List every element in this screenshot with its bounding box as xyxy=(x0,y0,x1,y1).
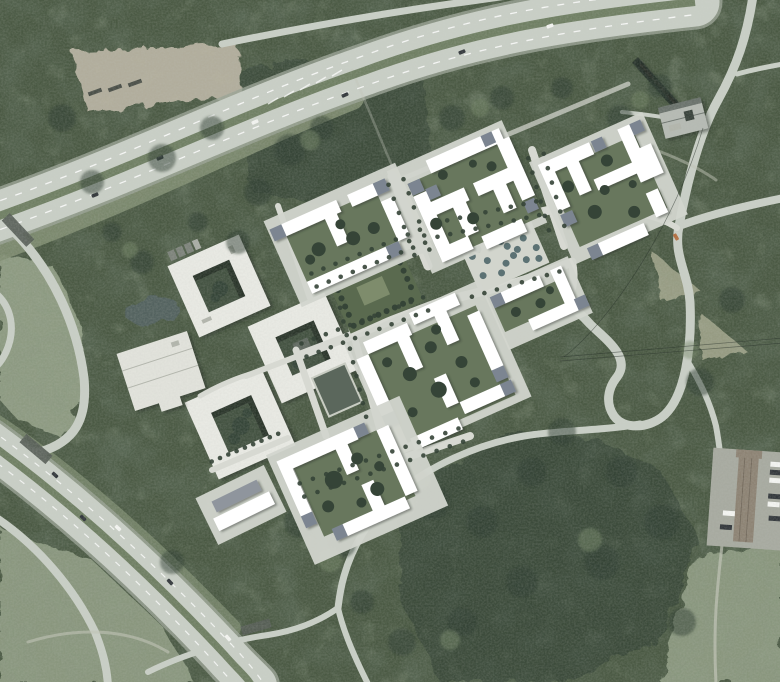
street-tree xyxy=(445,218,450,223)
street-tree xyxy=(482,291,487,296)
street-tree xyxy=(357,387,362,392)
street-tree xyxy=(363,265,368,270)
street-tree xyxy=(391,197,396,202)
street-tree xyxy=(381,242,386,247)
street-tree xyxy=(473,226,478,231)
street-tree xyxy=(243,445,248,450)
street-tree xyxy=(483,210,488,215)
street-tree xyxy=(386,183,391,188)
street-tree xyxy=(530,170,535,175)
street-tree xyxy=(321,266,326,271)
street-tree xyxy=(368,471,373,476)
street-tree xyxy=(311,337,316,342)
street-tree xyxy=(377,327,382,332)
street-tree xyxy=(309,271,314,276)
street-tree xyxy=(403,445,408,450)
street-tree xyxy=(315,490,320,495)
street-tree xyxy=(251,442,256,447)
street-tree xyxy=(562,224,567,229)
street-tree xyxy=(507,284,512,289)
street-tree xyxy=(426,308,431,313)
street-tree xyxy=(361,401,366,406)
street-tree xyxy=(434,449,439,454)
street-tree xyxy=(550,180,555,185)
street-tree xyxy=(355,476,360,481)
street-tree xyxy=(364,415,369,420)
street-tree xyxy=(351,360,356,365)
street-tree xyxy=(543,214,548,219)
aerial-map: Aerial photograph site plan — masterplan… xyxy=(0,0,780,682)
street-tree xyxy=(418,227,423,232)
street-tree xyxy=(421,295,426,300)
street-tree xyxy=(414,313,419,318)
street-tree xyxy=(329,485,334,490)
street-tree xyxy=(461,439,466,444)
street-tree xyxy=(324,472,329,477)
street-tree xyxy=(384,309,389,314)
street-tree xyxy=(338,306,343,311)
street-tree xyxy=(341,340,346,345)
street-tree xyxy=(209,459,214,464)
street-tree xyxy=(302,494,307,499)
street-tree xyxy=(377,454,382,459)
street-tree xyxy=(534,199,539,204)
street-tree xyxy=(486,224,491,229)
street-tree xyxy=(458,215,463,220)
street-tree xyxy=(537,213,542,218)
street-tree xyxy=(430,435,435,440)
street-tree xyxy=(336,327,341,332)
street-tree xyxy=(417,440,422,445)
street-tree xyxy=(456,426,461,431)
street-tree xyxy=(401,177,406,182)
street-tree xyxy=(524,216,529,221)
street-tree xyxy=(364,458,369,463)
street-tree xyxy=(422,233,427,238)
street-tree xyxy=(496,207,501,212)
street-tree xyxy=(316,350,321,355)
street-tree xyxy=(421,453,426,458)
street-tree xyxy=(218,456,223,461)
street-tree xyxy=(423,240,428,245)
street-tree xyxy=(337,467,342,472)
street-tree xyxy=(546,166,551,171)
street-tree xyxy=(226,452,231,457)
street-tree xyxy=(554,195,559,200)
street-tree xyxy=(532,276,537,281)
street-tree xyxy=(557,269,562,274)
street-tree xyxy=(259,438,264,443)
street-tree xyxy=(326,279,331,284)
street-tree xyxy=(417,219,422,224)
street-tree xyxy=(234,449,239,454)
street-tree xyxy=(547,228,552,233)
street-tree xyxy=(541,152,546,157)
street-tree xyxy=(390,449,395,454)
street-tree xyxy=(448,232,453,237)
street-tree xyxy=(360,318,365,323)
street-tree xyxy=(399,250,404,255)
street-tree xyxy=(427,247,432,252)
street-tree xyxy=(406,232,411,237)
street-tree xyxy=(558,209,563,214)
street-tree xyxy=(499,221,504,226)
street-tree xyxy=(401,317,406,322)
street-tree xyxy=(311,477,316,482)
street-tree xyxy=(511,218,516,223)
street-tree xyxy=(314,284,319,289)
street-tree xyxy=(520,280,525,285)
street-tree xyxy=(411,245,416,250)
street-tree xyxy=(268,435,273,440)
street-tree xyxy=(408,458,413,463)
street-tree xyxy=(354,374,359,379)
street-tree xyxy=(338,275,343,280)
street-tree xyxy=(432,221,437,226)
street-tree xyxy=(276,432,281,437)
street-tree xyxy=(342,481,347,486)
street-tree xyxy=(345,257,350,262)
street-tree xyxy=(375,260,380,265)
street-tree xyxy=(402,225,407,230)
street-tree xyxy=(299,341,304,346)
street-tree xyxy=(395,462,400,467)
street-tree xyxy=(412,253,417,258)
street-tree xyxy=(406,191,411,196)
street-tree xyxy=(333,262,338,267)
street-tree xyxy=(443,431,448,436)
street-tree xyxy=(409,300,414,305)
street-tree xyxy=(397,211,402,216)
street-tree xyxy=(545,273,550,278)
street-tree xyxy=(412,205,417,210)
street-tree xyxy=(344,333,349,338)
street-tree xyxy=(341,319,346,324)
street-tree xyxy=(365,331,370,336)
street-tree xyxy=(397,304,402,309)
street-tree xyxy=(526,156,531,161)
street-tree xyxy=(350,463,355,468)
street-tree xyxy=(394,237,399,242)
street-tree xyxy=(387,255,392,260)
street-tree xyxy=(348,346,353,351)
street-tree xyxy=(369,247,374,252)
street-tree xyxy=(470,213,475,218)
street-tree xyxy=(348,323,353,328)
street-tree xyxy=(297,481,302,486)
street-tree xyxy=(353,336,358,341)
street-tree xyxy=(435,235,440,240)
street-tree xyxy=(357,252,362,257)
street-tree xyxy=(389,322,394,327)
street-tree xyxy=(461,229,466,234)
street-tree xyxy=(509,205,514,210)
street-tree xyxy=(324,332,329,337)
street-tree xyxy=(381,467,386,472)
street-tree xyxy=(495,287,500,292)
street-tree xyxy=(304,354,309,359)
street-tree xyxy=(407,239,412,244)
street-tree xyxy=(351,270,356,275)
street-tree xyxy=(329,345,334,350)
street-tree xyxy=(448,444,453,449)
street-tree xyxy=(534,185,539,190)
aerial-site-plan-svg xyxy=(0,0,780,682)
street-tree xyxy=(538,199,543,204)
street-tree xyxy=(372,314,377,319)
street-tree xyxy=(470,294,475,299)
street-tree xyxy=(521,202,526,207)
